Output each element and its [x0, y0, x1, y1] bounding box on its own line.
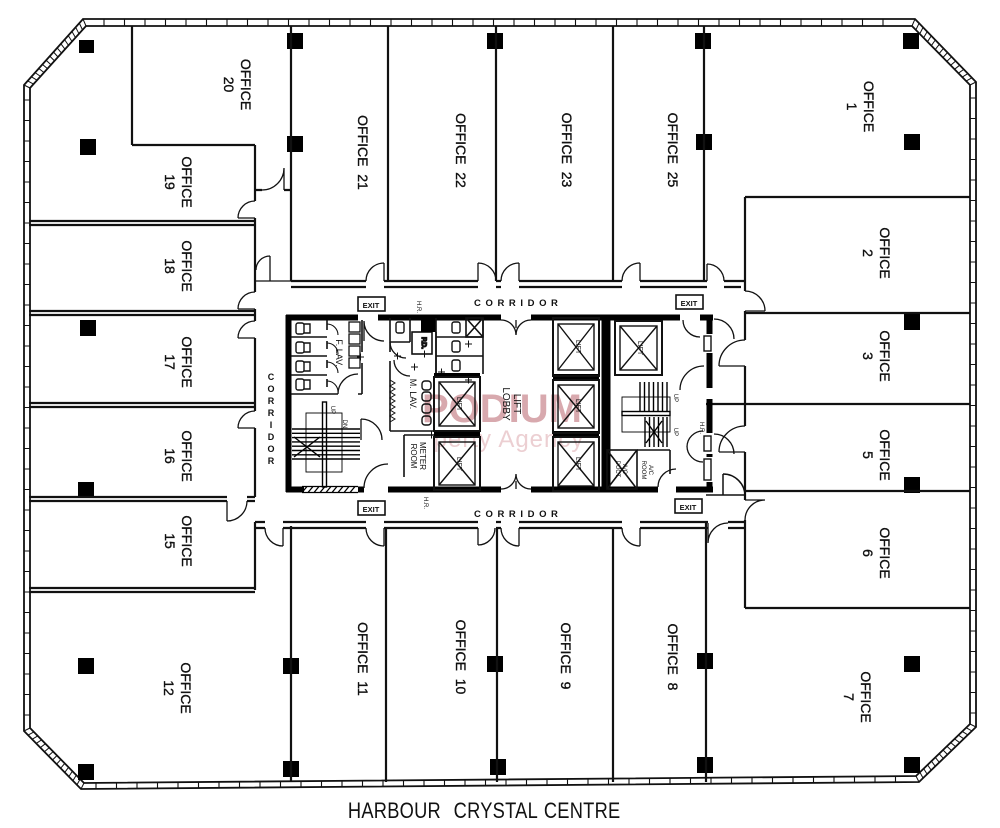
svg-text:OFFICE 9: OFFICE 9 [558, 623, 574, 690]
svg-text:P.D.: P.D. [420, 337, 427, 349]
svg-text:OFFICE 25: OFFICE 25 [665, 113, 681, 188]
svg-text:HARBOUR: HARBOUR [348, 799, 441, 823]
svg-text:EXIT: EXIT [363, 505, 380, 514]
svg-text:R: R [268, 408, 275, 418]
svg-text:UP: UP [329, 406, 335, 414]
svg-text:OFFICE 11: OFFICE 11 [355, 622, 371, 696]
svg-text:OFFICE 8: OFFICE 8 [665, 624, 681, 691]
svg-text:OFFICE 10: OFFICE 10 [453, 620, 469, 695]
svg-text:O: O [267, 384, 274, 394]
svg-text:H.R.: H.R. [422, 497, 428, 509]
svg-text:C: C [268, 372, 275, 382]
svg-text:LIFT: LIFT [574, 340, 581, 355]
svg-text:R: R [268, 456, 275, 466]
svg-text:EXIT: EXIT [363, 301, 380, 310]
svg-text:CENTRE: CENTRE [544, 799, 621, 823]
svg-text:H.R.: H.R. [698, 422, 704, 434]
svg-text:DN: DN [341, 420, 347, 429]
svg-text:I: I [270, 420, 273, 430]
svg-text:H.R.: H.R. [415, 301, 421, 313]
svg-text:M. LAV.: M. LAV. [408, 379, 418, 410]
svg-text:EXIT: EXIT [680, 503, 697, 512]
svg-text:R: R [268, 396, 275, 406]
svg-text:UP: UP [672, 428, 678, 436]
svg-text:OFFICE 23: OFFICE 23 [559, 113, 575, 188]
svg-text:METERROOM: METERROOM [409, 442, 427, 470]
svg-text:CRYSTAL: CRYSTAL [454, 799, 538, 823]
svg-text:UP: UP [672, 394, 678, 402]
svg-text:OFFICE 22: OFFICE 22 [453, 113, 469, 188]
svg-text:LIFT: LIFT [574, 399, 581, 414]
svg-text:F. LAV.: F. LAV. [334, 339, 344, 367]
svg-text:LIFT: LIFT [574, 457, 581, 472]
svg-text:OFFICE 21: OFFICE 21 [355, 115, 371, 190]
svg-text:LIFT: LIFT [455, 457, 462, 472]
svg-text:O: O [267, 444, 274, 454]
svg-text:D: D [268, 432, 275, 442]
svg-text:CORRIDOR: CORRIDOR [474, 509, 563, 520]
svg-text:LIFT: LIFT [455, 397, 462, 412]
svg-text:EXIT: EXIT [681, 299, 698, 308]
svg-text:LIFT: LIFT [636, 341, 643, 356]
svg-text:CORRIDOR: CORRIDOR [474, 298, 563, 309]
